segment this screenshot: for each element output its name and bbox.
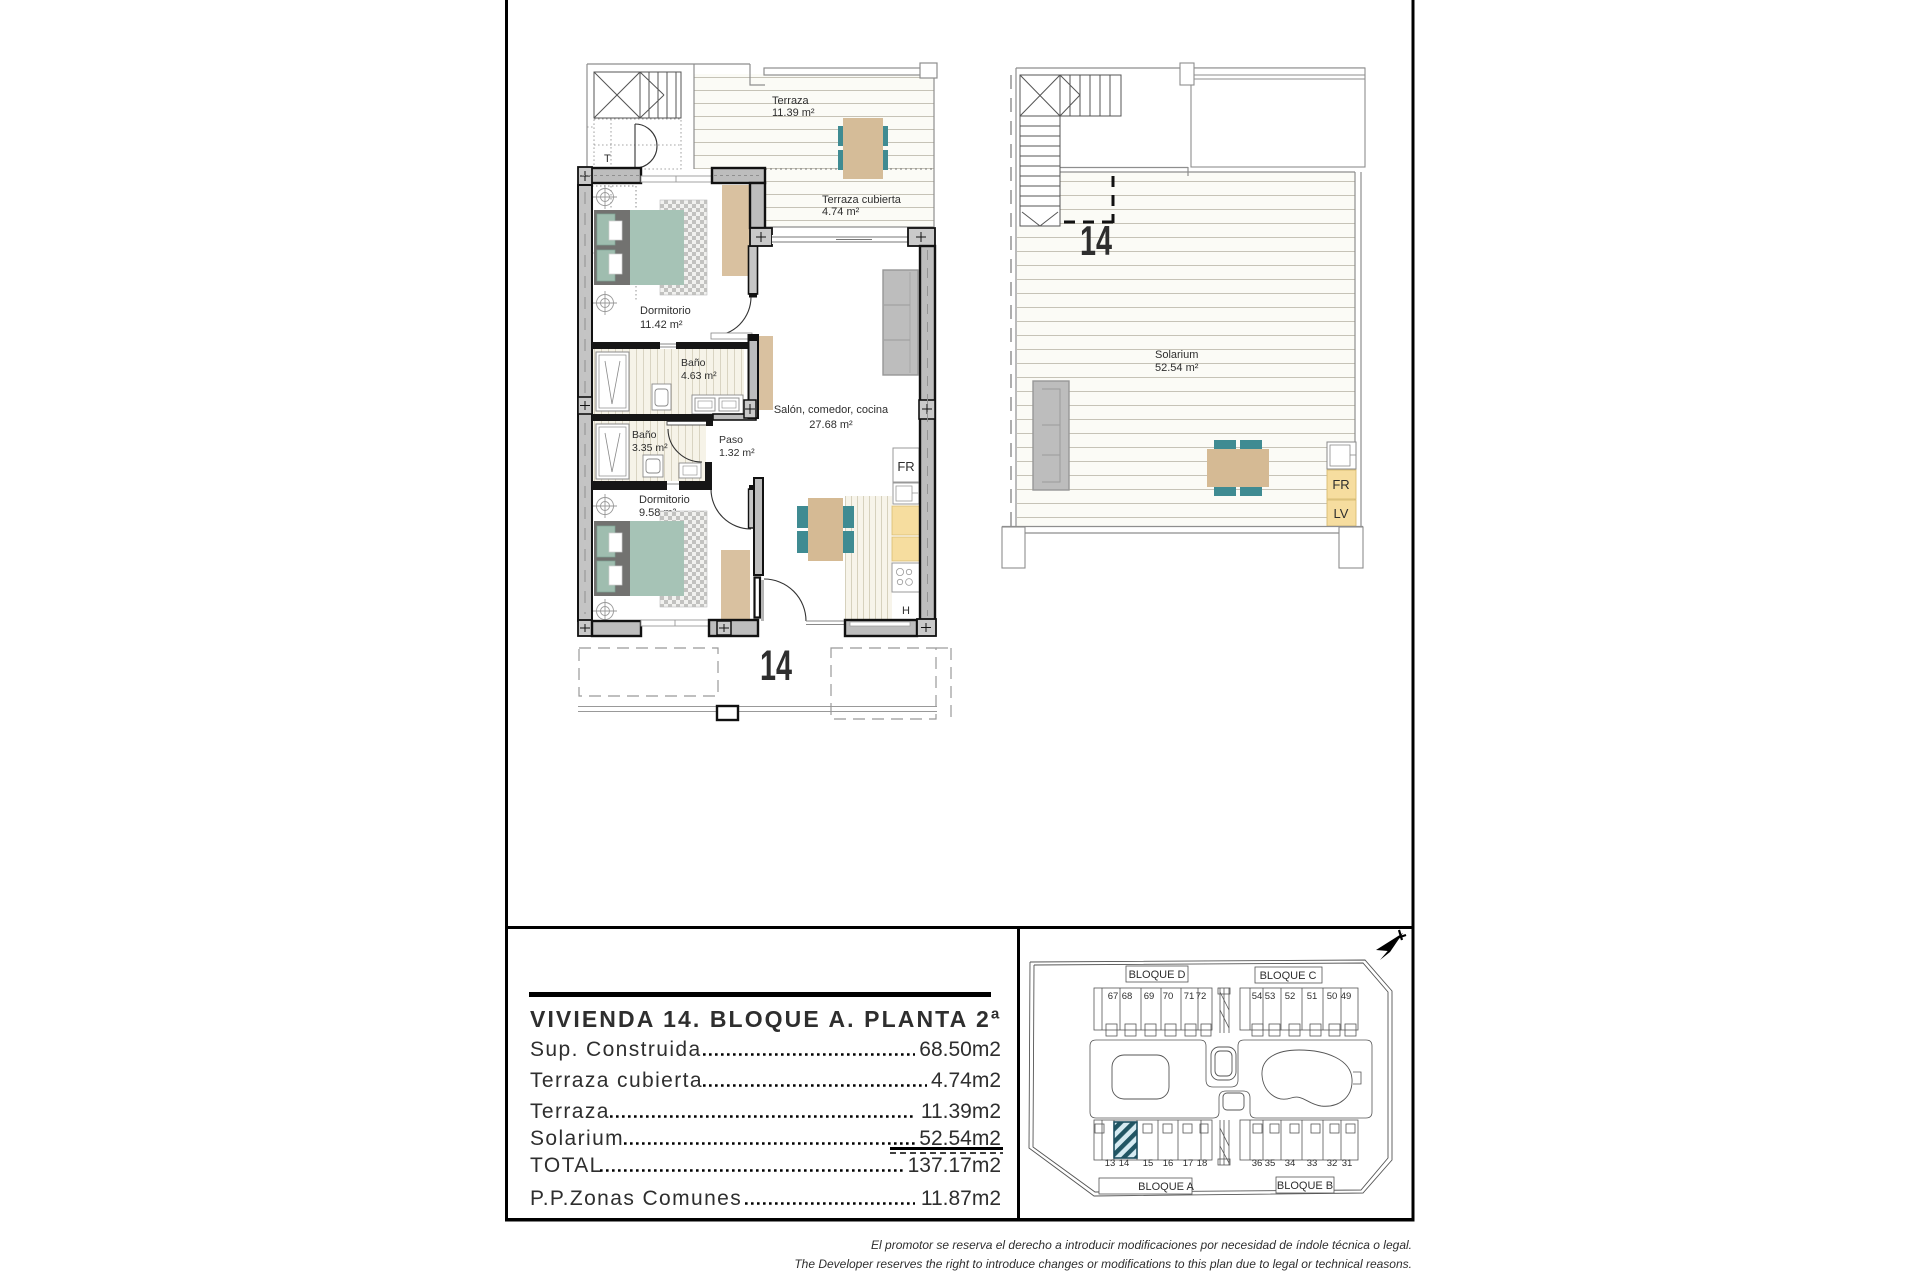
svg-text:Solarium: Solarium [1155,349,1198,361]
svg-text:68: 68 [1122,991,1133,1002]
svg-text:14: 14 [1119,1158,1130,1169]
svg-text:3.35 m²: 3.35 m² [632,442,668,454]
svg-text:Salón, comedor, cocina: Salón, comedor, cocina [774,404,889,416]
svg-text:El promotor se reserva el dere: El promotor se reserva el derecho a intr… [871,1238,1412,1252]
svg-text:18: 18 [1197,1158,1208,1169]
svg-text:Solarium: Solarium [530,1127,624,1150]
svg-text:1.32 m²: 1.32 m² [719,447,755,459]
svg-text:11.39 m²: 11.39 m² [772,107,815,119]
svg-text:11.42 m²: 11.42 m² [640,319,683,331]
svg-text:Paso: Paso [719,434,743,446]
svg-text:Dormitorio: Dormitorio [639,494,690,506]
svg-text:36: 36 [1252,1158,1263,1169]
svg-text:70: 70 [1163,991,1174,1002]
svg-text:33: 33 [1307,1158,1318,1169]
svg-text:BLOQUE A: BLOQUE A [1138,1181,1194,1193]
svg-text:Baño: Baño [681,357,706,369]
svg-text:34: 34 [1285,1158,1296,1169]
svg-text:P.P.Zonas Comunes: P.P.Zonas Comunes [530,1187,742,1210]
svg-text:FR: FR [1332,477,1349,492]
svg-text:52.54 m²: 52.54 m² [1155,362,1199,374]
svg-text:72: 72 [1196,991,1207,1002]
svg-text:14: 14 [760,642,792,690]
svg-text:17: 17 [1183,1158,1194,1169]
svg-text:BLOQUE D: BLOQUE D [1129,969,1186,981]
svg-text:16: 16 [1163,1158,1174,1169]
svg-text:14: 14 [1080,217,1112,264]
svg-text:68.50m2: 68.50m2 [919,1038,1001,1061]
svg-text:H: H [902,605,910,617]
svg-text:50: 50 [1327,991,1338,1002]
svg-text:52: 52 [1285,991,1296,1002]
svg-text:52.54m2: 52.54m2 [919,1127,1001,1150]
svg-text:4.63 m²: 4.63 m² [681,370,717,382]
svg-text:FR: FR [897,459,914,474]
svg-text:13: 13 [1105,1158,1116,1169]
svg-text:LV: LV [1334,506,1349,521]
svg-text:35: 35 [1265,1158,1276,1169]
svg-text:32: 32 [1327,1158,1338,1169]
svg-text:BLOQUE B: BLOQUE B [1277,1180,1333,1192]
svg-text:31: 31 [1342,1158,1353,1169]
svg-text:4.74 m²: 4.74 m² [822,206,860,218]
svg-text:Terraza cubierta: Terraza cubierta [822,194,902,206]
svg-text:137.17m2: 137.17m2 [908,1154,1001,1177]
svg-text:53: 53 [1265,991,1276,1002]
svg-text:27.68 m²: 27.68 m² [809,419,853,431]
svg-text:The Developer reserves the rig: The Developer reserves the right to intr… [794,1257,1412,1271]
svg-text:Baño: Baño [632,429,657,441]
svg-text:49: 49 [1341,991,1352,1002]
svg-text:4.74m2: 4.74m2 [931,1069,1001,1092]
svg-text:Dormitorio: Dormitorio [640,305,691,317]
svg-text:BLOQUE C: BLOQUE C [1260,970,1317,982]
svg-text:54: 54 [1252,991,1263,1002]
svg-text:Terraza: Terraza [530,1100,610,1123]
svg-text:11.39m2: 11.39m2 [921,1100,1001,1123]
svg-text:51: 51 [1307,991,1318,1002]
svg-text:Terraza: Terraza [772,95,810,107]
svg-text:67: 67 [1108,991,1119,1002]
svg-text:Sup. Construida: Sup. Construida [530,1038,702,1061]
svg-text:VIVIENDA 14. BLOQUE A. PLANTA: VIVIENDA 14. BLOQUE A. PLANTA 2ª [530,1006,1001,1032]
svg-text:Terraza cubierta: Terraza cubierta [530,1069,703,1092]
svg-text:15: 15 [1143,1158,1154,1169]
svg-text:T: T [604,153,611,165]
svg-text:71: 71 [1184,991,1195,1002]
svg-text:11.87m2: 11.87m2 [921,1187,1001,1210]
svg-text:69: 69 [1144,991,1155,1002]
svg-text:TOTAL: TOTAL [530,1154,603,1177]
